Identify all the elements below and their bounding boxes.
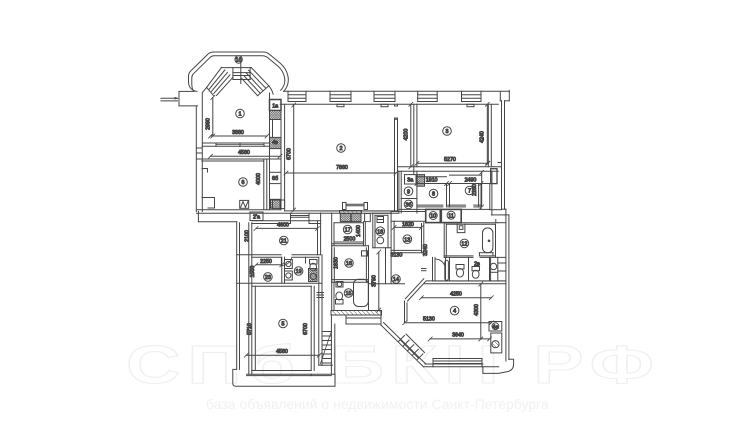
svg-text:2500: 2500 [344,236,356,242]
svg-text:17: 17 [345,228,351,234]
svg-text:1910: 1910 [426,178,438,184]
svg-text:1а: 1а [272,104,278,110]
svg-text:4з: 4з [272,140,278,146]
svg-text:13: 13 [404,237,410,243]
svg-text:14: 14 [393,277,399,283]
svg-text:6700: 6700 [303,323,309,335]
svg-text:1400: 1400 [356,225,362,237]
svg-text:18: 18 [377,229,383,235]
svg-text:7: 7 [468,189,471,195]
svg-text:1820: 1820 [402,222,414,228]
svg-text:3: 3 [446,129,449,135]
svg-text:19: 19 [296,269,302,275]
svg-text:4300: 4300 [474,304,480,316]
svg-text:3880: 3880 [232,130,244,136]
svg-text:3640: 3640 [452,333,464,339]
svg-text:2100: 2100 [244,230,250,242]
svg-text:2'а: 2'а [253,214,260,220]
svg-text:3790: 3790 [371,275,377,287]
svg-text:4а: 4а [492,324,498,330]
svg-text:1: 1 [239,112,242,118]
svg-text:23: 23 [265,275,271,281]
svg-text:5130: 5130 [423,317,435,323]
svg-text:4200: 4200 [404,129,410,141]
svg-text:2250: 2250 [260,259,272,265]
svg-text:4580: 4580 [238,150,250,156]
svg-text:6б: 6б [272,176,278,182]
svg-text:3б: 3б [405,203,411,209]
svg-text:5: 5 [282,322,285,328]
svg-text:база объявлений о недвижимости: база объявлений о недвижимости Санкт-Пет… [206,396,549,412]
svg-text:4600: 4600 [277,223,289,229]
svg-text:2490: 2490 [465,177,477,183]
svg-text:1550: 1550 [250,266,256,278]
svg-text:15: 15 [346,291,352,297]
svg-text:3130: 3130 [391,252,403,258]
svg-text:5710: 5710 [247,323,253,335]
svg-text:СПб БКН РФ: СПб БКН РФ [126,335,661,395]
svg-text:3240: 3240 [423,244,429,256]
svg-text:5270: 5270 [444,157,456,163]
svg-text:1630: 1630 [334,257,340,269]
svg-text:16: 16 [346,261,352,267]
svg-text:9: 9 [407,189,410,195]
svg-text:4250: 4250 [450,292,462,298]
svg-text:4240: 4240 [480,131,486,143]
svg-text:10: 10 [430,214,436,220]
svg-text:1б: 1б [236,57,242,63]
svg-text:2260: 2260 [472,184,478,196]
svg-text:12: 12 [461,242,467,248]
svg-text:4: 4 [453,309,456,315]
svg-text:21: 21 [281,239,287,245]
svg-text:2: 2 [340,146,343,152]
svg-text:6700: 6700 [287,148,293,160]
svg-text:8: 8 [432,192,435,198]
svg-text:4000: 4000 [256,173,262,185]
svg-text:4580: 4580 [276,349,288,355]
svg-text:3а: 3а [407,178,413,184]
svg-text:6: 6 [242,180,245,186]
svg-text:11: 11 [448,213,454,219]
svg-text:2990: 2990 [206,118,212,130]
svg-text:7860: 7860 [336,165,348,171]
